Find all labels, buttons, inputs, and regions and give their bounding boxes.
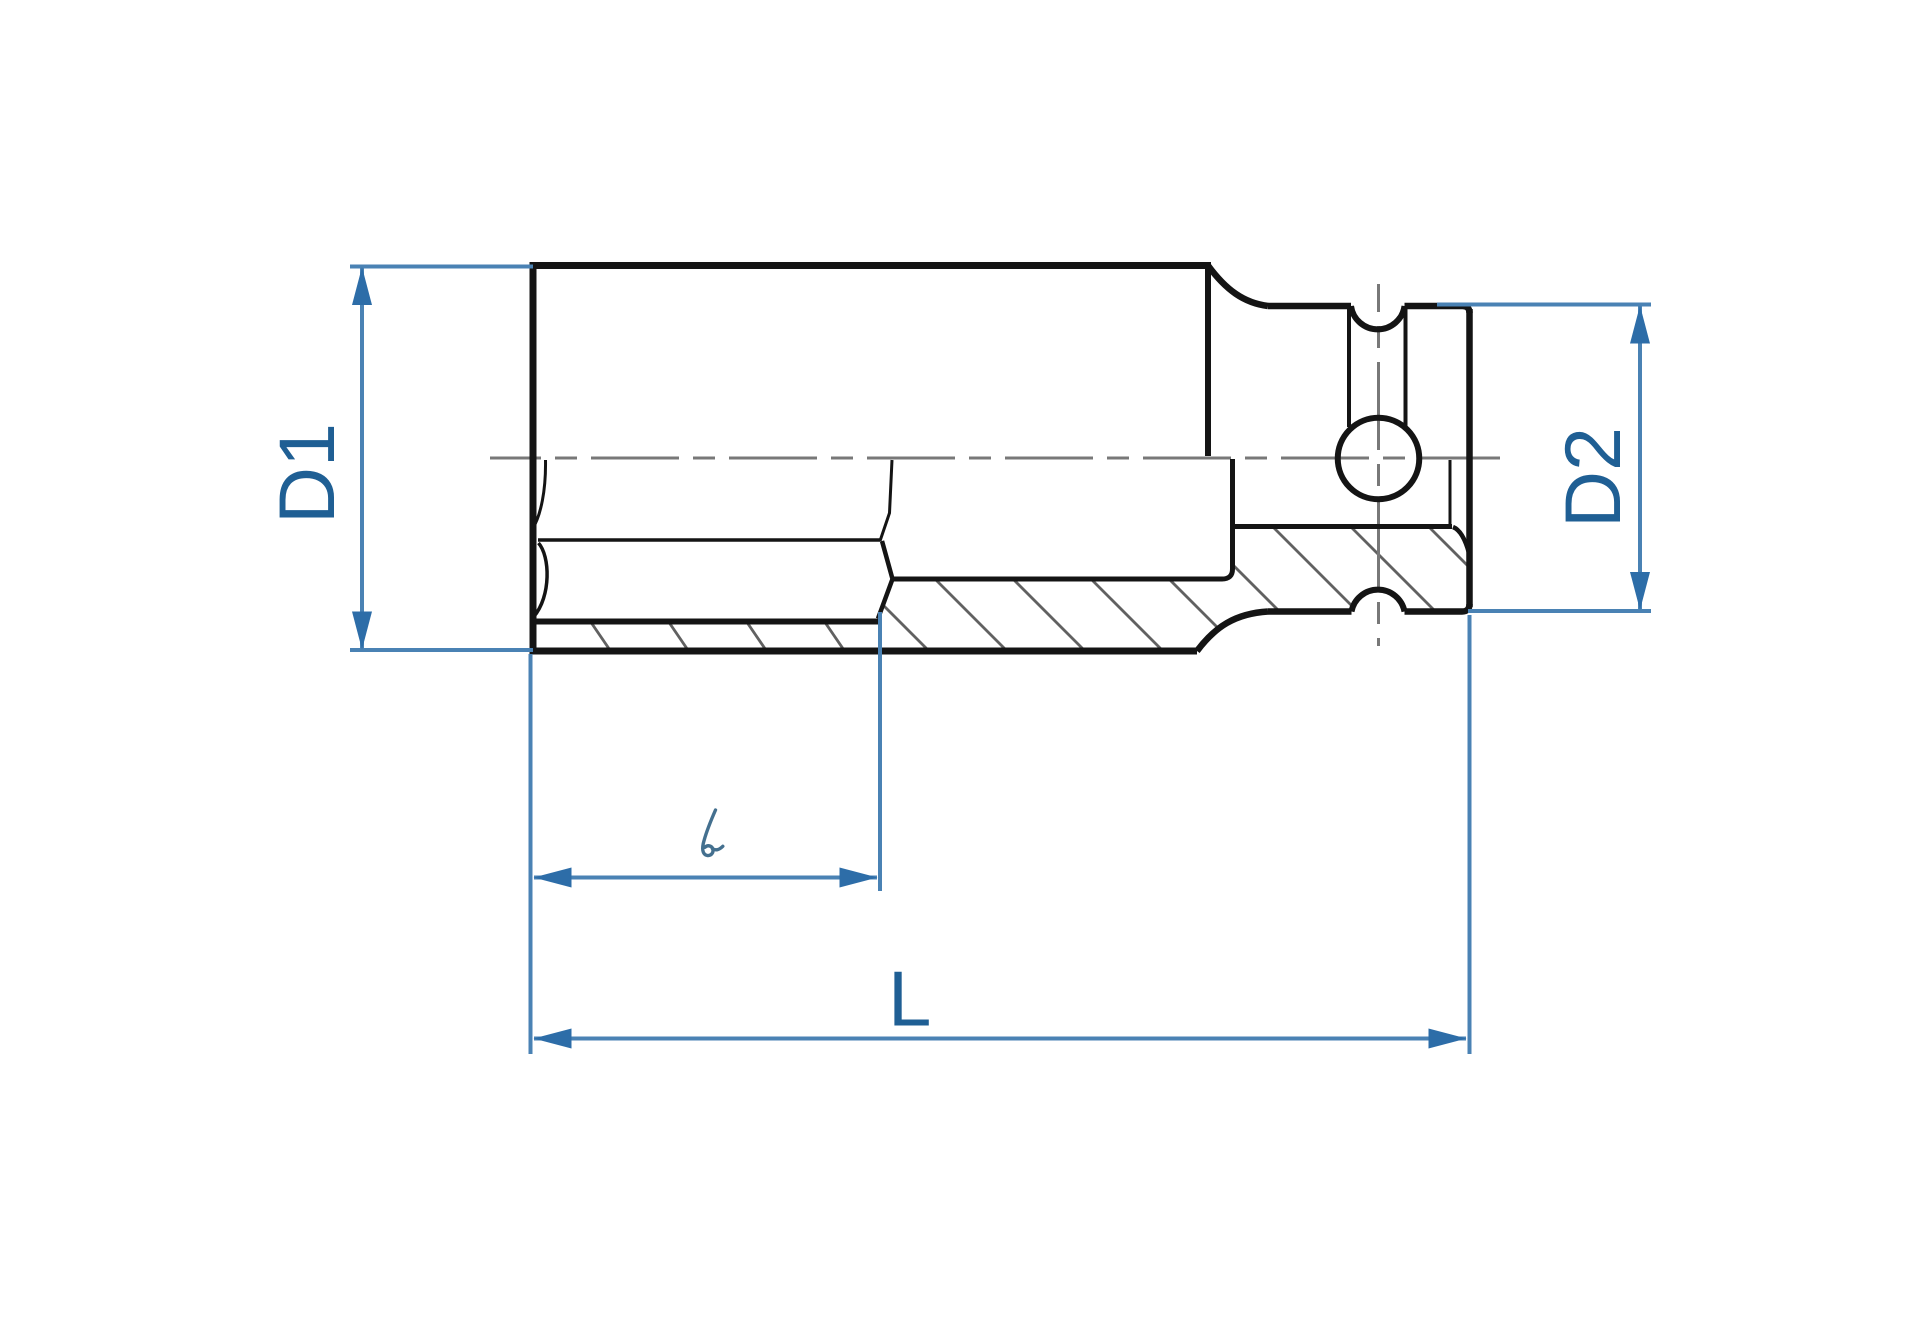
svg-text:D1: D1 [262, 423, 351, 524]
svg-text:L: L [888, 955, 931, 1043]
svg-text:D2: D2 [1548, 427, 1637, 528]
